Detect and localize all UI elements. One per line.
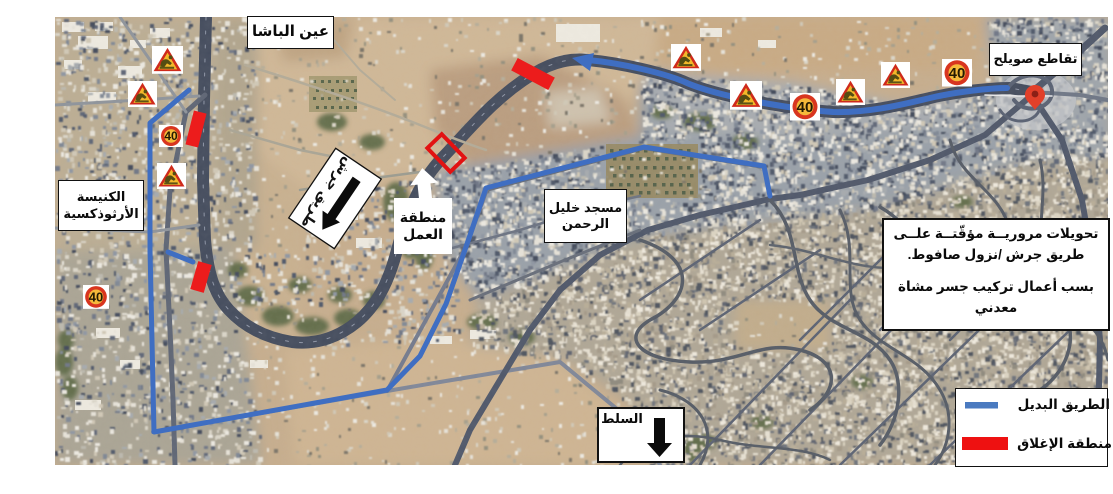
svg-text:40: 40 [797, 99, 814, 116]
svg-text:40: 40 [164, 129, 178, 143]
svg-text:40: 40 [89, 289, 103, 304]
svg-text:40: 40 [949, 65, 966, 82]
